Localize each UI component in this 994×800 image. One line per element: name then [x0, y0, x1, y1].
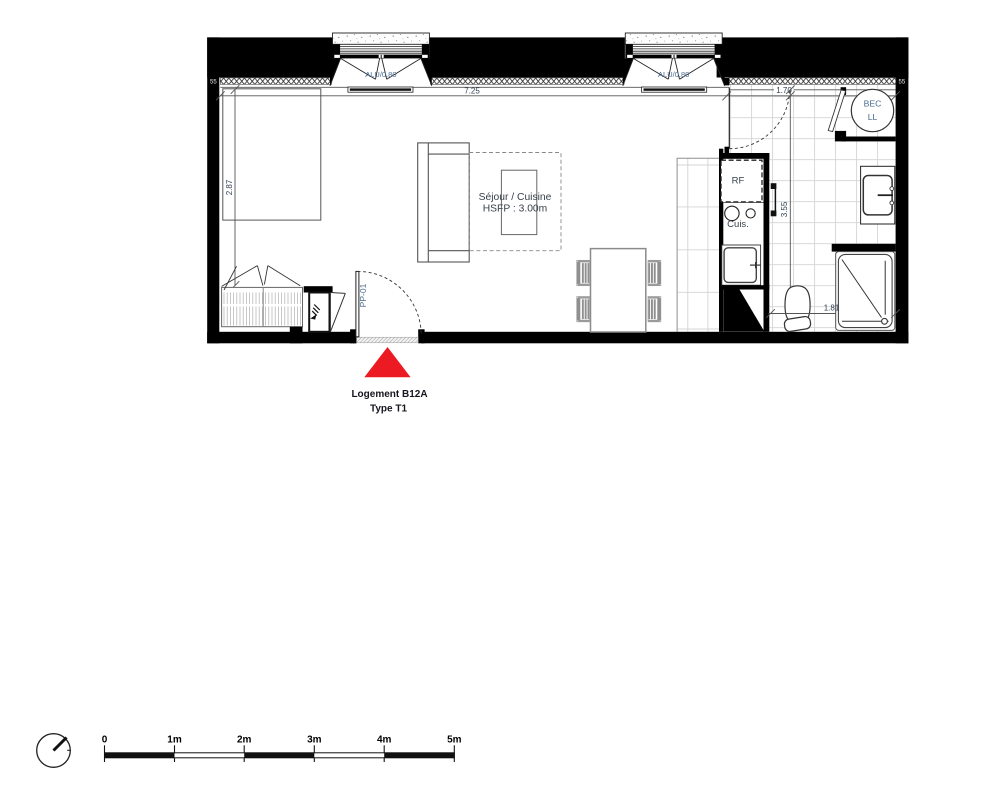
svg-text:RF: RF	[732, 176, 745, 187]
svg-text:1m: 1m	[167, 735, 182, 746]
svg-text:ALU/0.80: ALU/0.80	[658, 70, 689, 79]
svg-text:Logement B12A: Logement B12A	[351, 389, 427, 400]
svg-text:55: 55	[210, 79, 217, 85]
svg-text:3.55: 3.55	[780, 201, 789, 217]
svg-text:Cuis.: Cuis.	[727, 219, 749, 230]
svg-text:Type T1: Type T1	[370, 404, 407, 415]
svg-text:PP-01: PP-01	[358, 283, 368, 307]
svg-text:7.25: 7.25	[464, 87, 480, 96]
svg-text:HSFP : 3.00m: HSFP : 3.00m	[483, 204, 547, 215]
svg-text:4m: 4m	[377, 735, 392, 746]
svg-text:2.87: 2.87	[225, 179, 234, 195]
svg-text:0: 0	[102, 735, 108, 746]
svg-text:1.81: 1.81	[824, 304, 840, 313]
svg-text:ALU/0.80: ALU/0.80	[365, 70, 396, 79]
svg-text:3m: 3m	[307, 735, 322, 746]
svg-text:5m: 5m	[447, 735, 462, 746]
svg-text:BEC: BEC	[864, 99, 882, 109]
svg-text:Séjour / Cuisine: Séjour / Cuisine	[479, 192, 552, 203]
svg-text:LL: LL	[868, 112, 878, 122]
svg-text:2m: 2m	[237, 735, 252, 746]
svg-text:55: 55	[899, 79, 906, 85]
